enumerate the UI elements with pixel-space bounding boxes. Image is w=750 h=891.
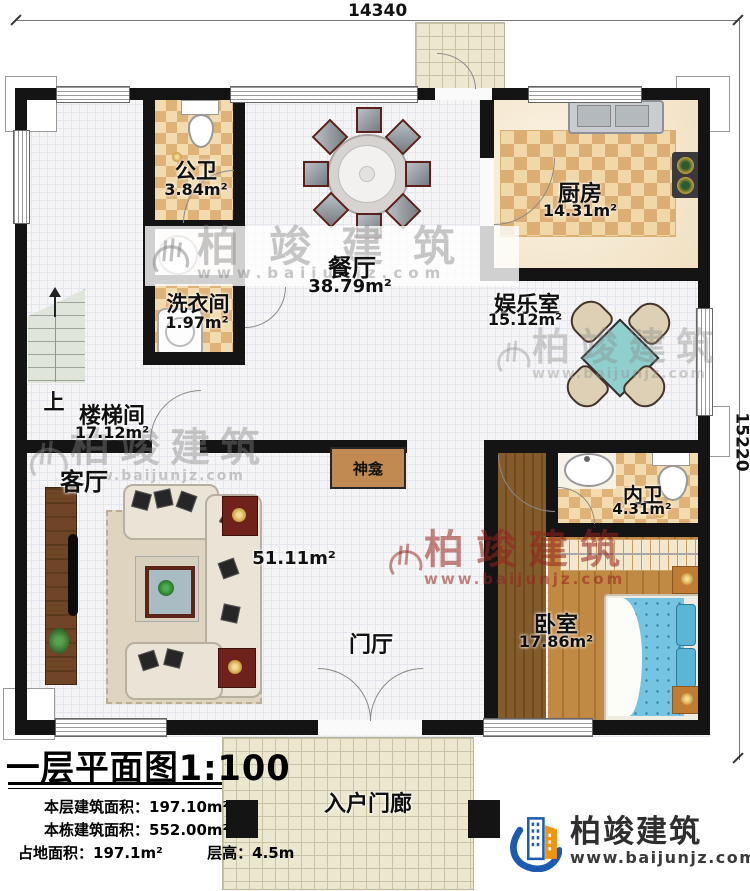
entry-door-opening bbox=[318, 720, 422, 735]
sofa-pillow bbox=[220, 603, 240, 623]
window-living-bottom bbox=[55, 718, 167, 737]
room-area-bedroom: 17.86m² bbox=[519, 632, 593, 651]
dining-chair bbox=[303, 161, 329, 187]
room-label-living: 客厅 bbox=[60, 462, 108, 497]
side-table-ornament bbox=[228, 660, 242, 674]
window-bedroom-bottom bbox=[483, 718, 593, 737]
wall-bedroom-top bbox=[484, 440, 710, 453]
brand-url: www.baijunjz.com bbox=[570, 848, 750, 867]
room-area-inner-bath: 4.31m² bbox=[612, 500, 671, 518]
kitchen-sink-basin bbox=[615, 105, 649, 127]
dimension-width-label: 14340 bbox=[348, 1, 407, 21]
inner-bath-faucet bbox=[584, 456, 590, 462]
wall-bath-right bbox=[233, 100, 245, 365]
brand-logo-icon bbox=[508, 812, 562, 872]
dimension-height-label: 15220 bbox=[732, 412, 750, 471]
wall-inner-bath-bottom bbox=[546, 523, 710, 537]
dining-chair bbox=[356, 213, 382, 239]
room-area-public-bath: 3.84m² bbox=[164, 180, 227, 199]
stat-value: 552.00m² bbox=[149, 821, 229, 839]
room-area-stair-hall: 17.12m² bbox=[75, 423, 149, 442]
dimension-tick bbox=[732, 752, 743, 763]
window-kitchen-top bbox=[528, 86, 642, 103]
shrine: 神龛 bbox=[330, 447, 406, 489]
porch-column-left bbox=[226, 800, 258, 838]
floor-plan-canvas: 神龛 柏竣建筑 www.baijunjz.com 柏竣建筑 www.baijun… bbox=[0, 0, 750, 891]
room-area-game: 15.12m² bbox=[488, 310, 562, 329]
side-table-ornament bbox=[232, 508, 246, 522]
stair-arrow-head bbox=[49, 287, 61, 297]
stove-burner bbox=[677, 177, 694, 194]
room-area-kitchen: 14.31m² bbox=[543, 201, 617, 220]
dining-table-center bbox=[359, 166, 375, 182]
window-top-left bbox=[56, 86, 130, 103]
platform-top-left bbox=[5, 76, 57, 132]
title-rule bbox=[8, 782, 222, 789]
dimension-line-right bbox=[739, 20, 740, 760]
window-dining-left bbox=[13, 130, 30, 224]
brand-logo: 柏竣建筑 www.baijunjz.com bbox=[508, 812, 750, 872]
cabinet-plant bbox=[49, 628, 69, 654]
wall-kitchen-bottom bbox=[480, 268, 710, 281]
dining-chair bbox=[405, 161, 431, 187]
stat-building-area: 本栋建筑面积：552.00m² bbox=[44, 819, 229, 840]
brand-name: 柏竣建筑 bbox=[570, 817, 750, 848]
washbasin bbox=[158, 235, 198, 275]
kitchen-sink-basin bbox=[577, 105, 611, 127]
wall-bath-h2 bbox=[143, 275, 245, 284]
stat-value: 197.1m² bbox=[93, 844, 163, 862]
stat-label: 占地面积： bbox=[18, 844, 93, 862]
wall-bath-bottom bbox=[143, 352, 245, 365]
dining-chair bbox=[356, 107, 382, 133]
room-label-entry-porch: 入户门廊 bbox=[324, 786, 412, 818]
room-label-foyer: 门厅 bbox=[349, 627, 393, 659]
stat-floor-area: 本层建筑面积：197.10m² bbox=[44, 796, 229, 817]
sofa-pillow bbox=[153, 488, 173, 508]
stair-arrow-line bbox=[54, 295, 56, 317]
porch-column-right bbox=[468, 800, 500, 838]
stairs-up-label: 上 bbox=[44, 386, 65, 416]
room-area-dining: 38.79m² bbox=[308, 276, 392, 297]
room-area-living: 51.11m² bbox=[252, 548, 336, 569]
back-door-opening bbox=[435, 88, 492, 100]
stove-burner bbox=[677, 157, 694, 174]
toilet-tank bbox=[181, 100, 219, 115]
nightstand-ornament bbox=[681, 693, 693, 705]
stat-value: 4.5m bbox=[252, 844, 294, 862]
closet-rail bbox=[560, 553, 698, 555]
window-game-room-right bbox=[696, 308, 713, 416]
shrine-label: 神龛 bbox=[353, 458, 383, 479]
window-dining-top bbox=[230, 86, 418, 103]
stat-label: 本层建筑面积： bbox=[44, 798, 149, 816]
tv bbox=[68, 534, 78, 616]
stat-footprint-height: 占地面积：197.1m² 层高：4.5m bbox=[18, 842, 294, 863]
wall-bath-left bbox=[143, 100, 155, 365]
coffee-table-plant bbox=[158, 580, 174, 596]
nightstand-ornament bbox=[681, 573, 693, 585]
stat-value: 197.10m² bbox=[149, 798, 229, 816]
stat-label: 本栋建筑面积： bbox=[44, 821, 149, 839]
room-area-laundry: 1.97m² bbox=[165, 313, 228, 332]
wall-bedroom-left bbox=[484, 440, 498, 735]
kitchen-door-opening bbox=[480, 158, 494, 226]
bed-pillow bbox=[676, 648, 696, 688]
stat-label: 层高： bbox=[207, 844, 252, 862]
bed-pillow bbox=[676, 604, 696, 646]
